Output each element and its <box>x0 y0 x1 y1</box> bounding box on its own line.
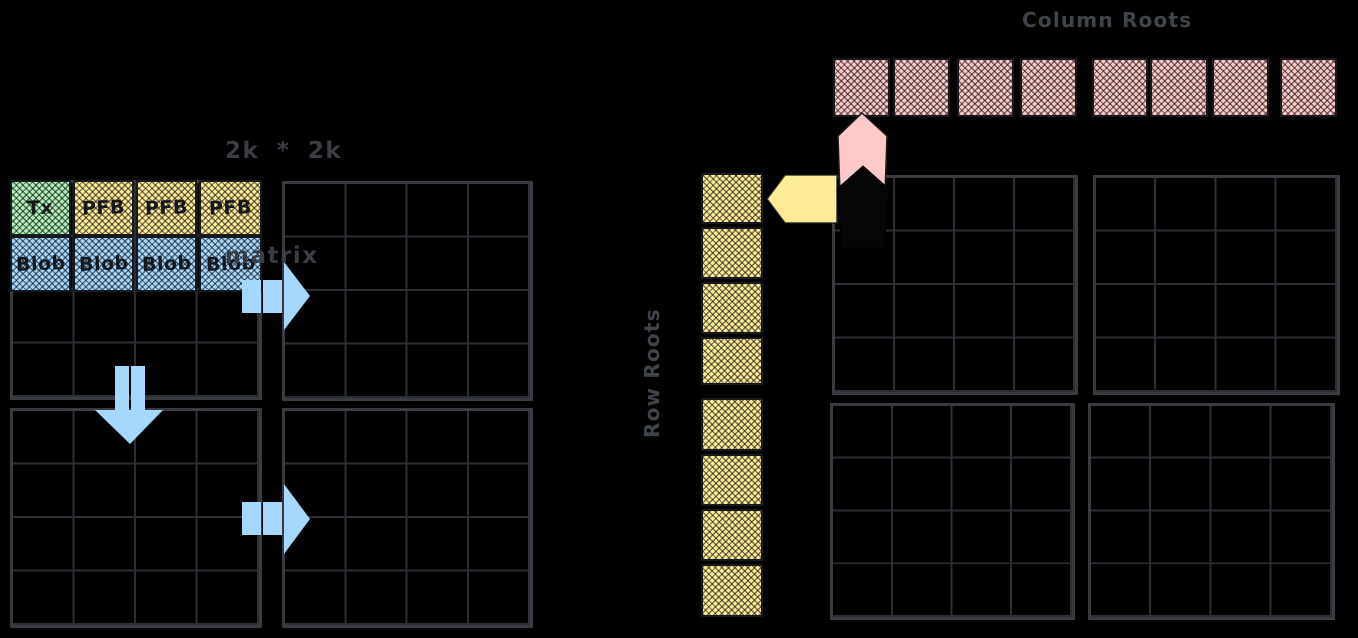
black-pentagon-icon <box>833 163 893 251</box>
header-cell-label: Tx <box>27 197 54 220</box>
header-cell-pfb: PFB <box>73 180 134 236</box>
header-cell-label: PFB <box>82 196 126 219</box>
right-grid-q2 <box>1093 175 1340 395</box>
header-cell-label: PFB <box>145 196 189 219</box>
row-root-cell <box>701 564 763 617</box>
blob-cell: Blob <box>136 236 197 292</box>
row-root-cell <box>701 282 763 334</box>
right-grid-q3 <box>830 403 1075 620</box>
row-root-cell <box>701 509 763 561</box>
column-root-cell <box>893 58 950 117</box>
left-arrow-yellow-icon <box>764 172 840 226</box>
column-root-cell <box>1280 58 1337 117</box>
row-root-cell <box>701 173 763 224</box>
blob-cell-label: Blob <box>15 252 65 276</box>
row-root-cell <box>701 454 763 506</box>
blob-cell-label: Blob <box>141 252 191 276</box>
right-grid-q4 <box>1088 403 1335 620</box>
header-cell-pfb: PFB <box>136 180 197 236</box>
blob-cell-label: Blob <box>78 252 128 276</box>
matrix-size-note-line1: 2k * 2k <box>225 134 342 169</box>
row-root-cell <box>701 227 763 279</box>
left-grid-q4 <box>282 408 533 628</box>
column-root-cell <box>1092 58 1148 117</box>
column-root-cell <box>833 58 890 117</box>
blob-cell: Blob <box>10 236 71 292</box>
matrix-size-note: 2k * 2k matrix <box>225 64 342 344</box>
column-root-cell <box>1212 58 1269 117</box>
row-root-cell <box>701 337 763 385</box>
diagram-canvas: Tx PFB PFB PFB Blob Blob Blob Blob <box>0 0 1358 638</box>
down-arrow-icon <box>93 364 167 446</box>
blob-cell: Blob <box>73 236 134 292</box>
header-cell-tx: Tx <box>10 180 71 236</box>
column-root-cell <box>957 58 1014 117</box>
column-root-cell <box>1150 58 1208 117</box>
column-roots-label: Column Roots <box>1022 8 1192 32</box>
right-arrow-icon <box>240 478 314 560</box>
matrix-size-note-line2: matrix <box>225 239 342 274</box>
column-root-cell <box>1020 58 1077 117</box>
row-roots-label: Row Roots <box>640 318 664 438</box>
row-root-cell <box>701 398 763 451</box>
